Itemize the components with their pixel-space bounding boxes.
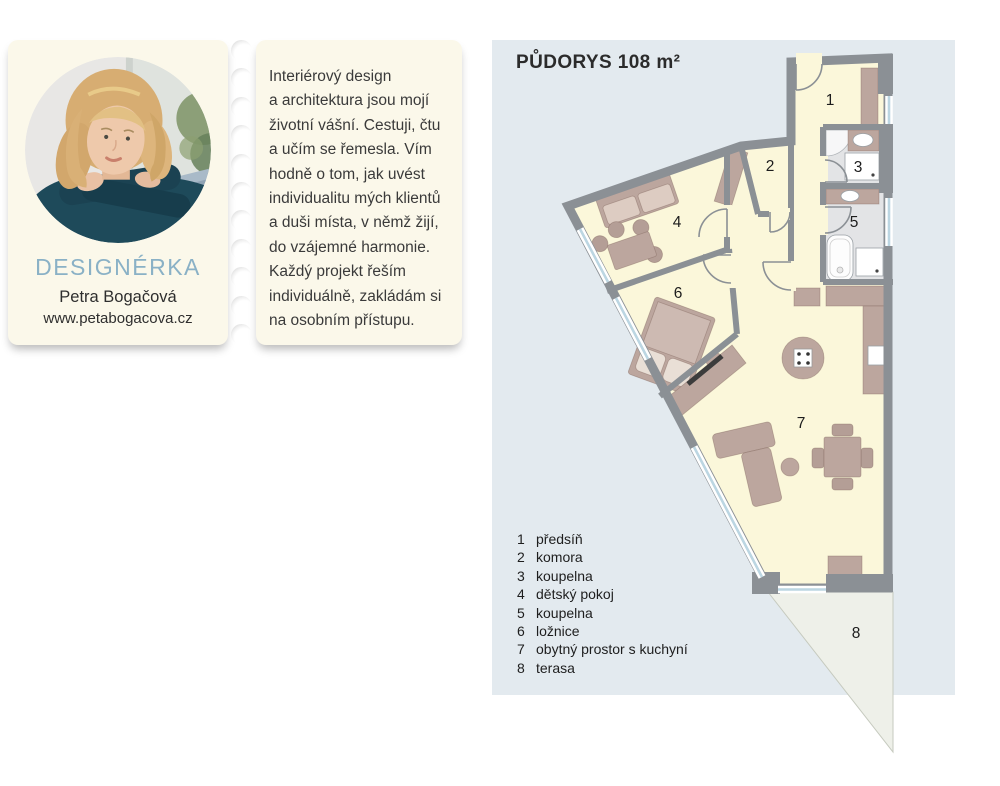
room-label-5: 5 [850, 214, 859, 231]
side-table [781, 458, 799, 476]
floor-plan-legend: 1předsíň 2komora 3koupelna 4dětský pokoj… [517, 530, 688, 677]
website-link[interactable]: www.petabogacova.cz [8, 310, 228, 327]
legend-item: 8terasa [517, 659, 688, 677]
legend-item: 3koupelna [517, 567, 688, 585]
punch-hole [231, 210, 252, 231]
legend-item: 6ložnice [517, 622, 688, 640]
punch-hole [231, 267, 252, 288]
corner-cabinet [828, 556, 862, 576]
designer-name: Petra Bogačová [8, 288, 228, 307]
punch-hole [231, 296, 252, 317]
room-label-3: 3 [854, 159, 863, 176]
designer-portrait-photo [25, 57, 211, 243]
designer-profile-card: DESIGNÉRKA Petra Bogačová www.petabogaco… [8, 40, 228, 345]
sink [841, 191, 859, 202]
punch-hole [231, 97, 252, 118]
designer-bio-card: Interiérový design a architektura jsou m… [256, 40, 462, 345]
legend-item: 5koupelna [517, 604, 688, 622]
room-label-1: 1 [826, 92, 835, 109]
punch-hole [231, 182, 252, 203]
magazine-page: DESIGNÉRKA Petra Bogačová www.petabogaco… [0, 0, 1000, 786]
bio-text: Interiérový design a architektura jsou m… [256, 40, 462, 333]
room-label-4: 4 [673, 214, 682, 231]
perforation-strip [231, 40, 253, 345]
legend-item: 7obytný prostor s kuchyní [517, 640, 688, 658]
room-label-6: 6 [674, 285, 683, 302]
kitchen-sink [868, 346, 884, 365]
legend-item: 1předsíň [517, 530, 688, 548]
punch-hole [231, 68, 252, 89]
terrace-area [768, 592, 893, 752]
punch-hole [231, 154, 252, 175]
cooktop [794, 349, 812, 367]
kitchen-counter [826, 286, 889, 306]
sink [853, 134, 873, 147]
washing-machine [856, 248, 883, 276]
hall-cabinet [794, 288, 820, 306]
punch-hole [231, 40, 252, 61]
room-label-7: 7 [797, 415, 806, 432]
punch-hole [231, 239, 252, 260]
room-label-8: 8 [852, 625, 861, 642]
legend-item: 4dětský pokoj [517, 585, 688, 603]
wardrobe [861, 68, 878, 126]
portrait-illustration [25, 57, 211, 243]
punch-hole [231, 324, 252, 345]
punch-hole [231, 125, 252, 146]
room-label-2: 2 [766, 158, 775, 175]
legend-item: 2komora [517, 548, 688, 566]
role-title: DESIGNÉRKA [8, 254, 228, 281]
